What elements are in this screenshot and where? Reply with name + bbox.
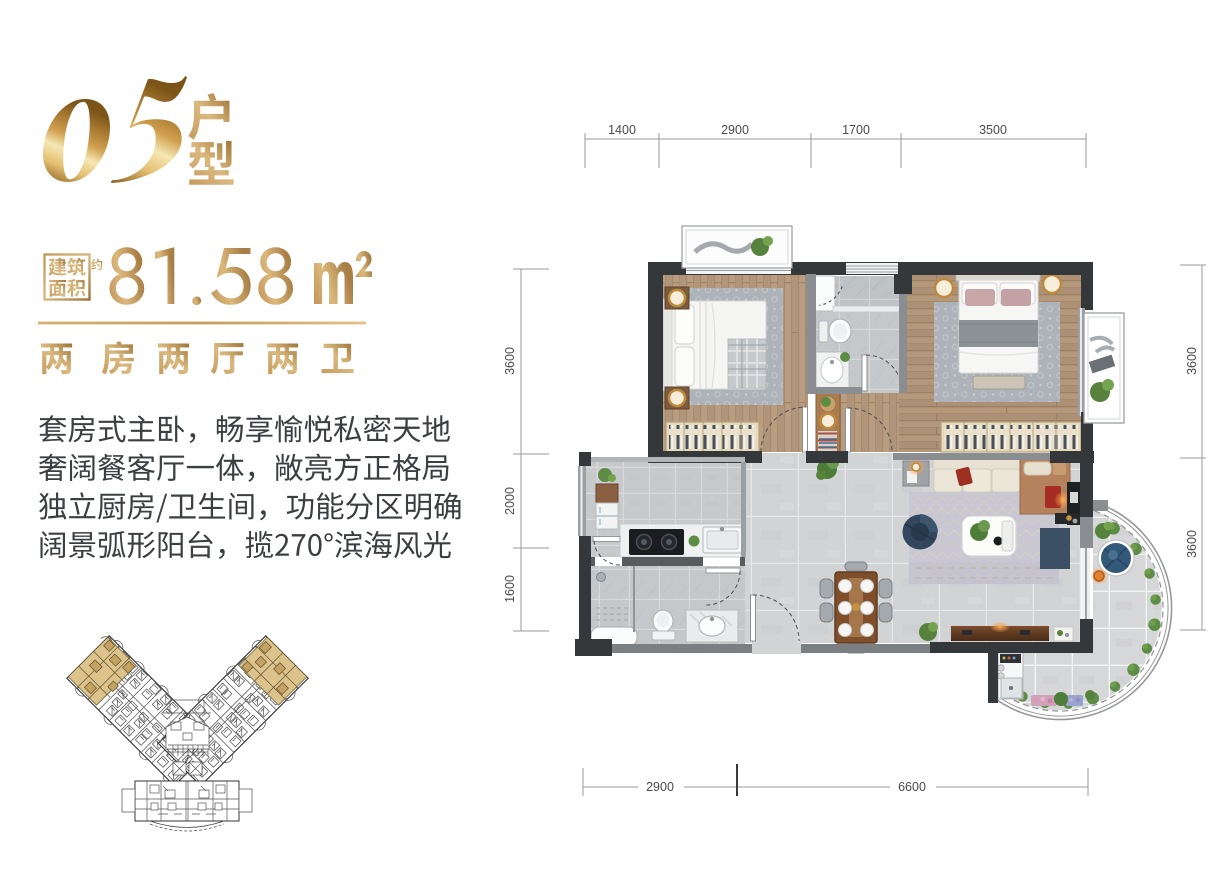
svg-text:2900: 2900 (721, 123, 749, 137)
svg-text:1600: 1600 (503, 575, 517, 603)
svg-text:2000: 2000 (503, 487, 517, 515)
svg-text:1400: 1400 (608, 123, 636, 137)
svg-text:2900: 2900 (646, 780, 674, 794)
svg-text:3600: 3600 (1185, 530, 1199, 558)
svg-text:3600: 3600 (503, 347, 517, 375)
svg-text:3500: 3500 (979, 123, 1007, 137)
svg-text:6600: 6600 (898, 780, 926, 794)
svg-text:3600: 3600 (1185, 347, 1199, 375)
svg-text:1700: 1700 (842, 123, 870, 137)
